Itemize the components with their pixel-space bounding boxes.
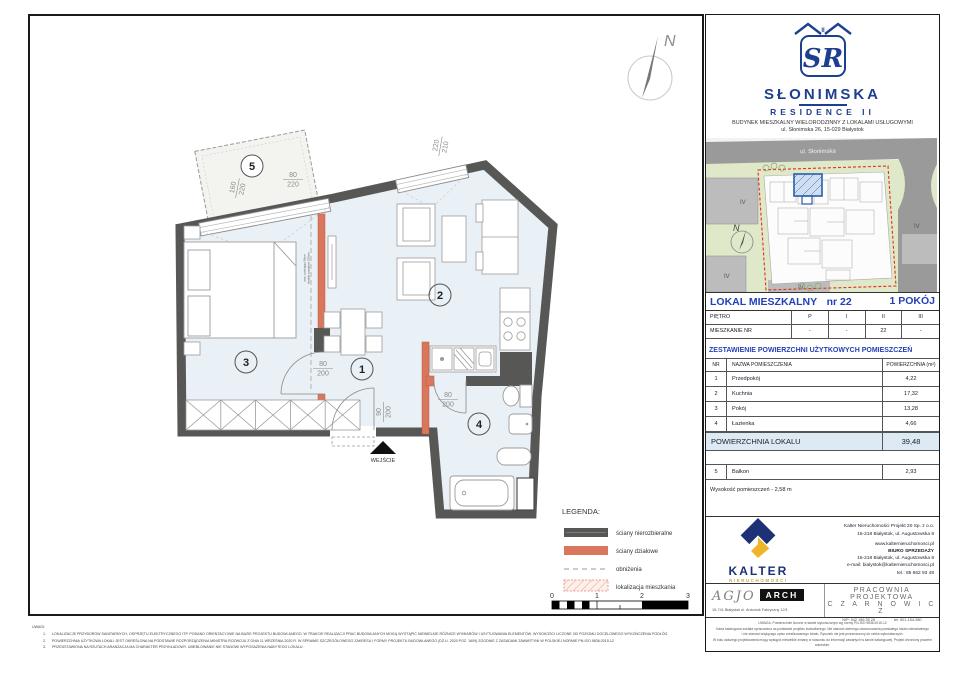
scale-label: 0 <box>550 593 554 600</box>
dim-value: 200 <box>442 402 454 409</box>
developer-phone: tel.: 85 662 93 48 <box>811 570 934 577</box>
washing-machine <box>517 478 534 510</box>
unit-room-count: 1 POKÓJ <box>889 295 935 307</box>
developer-website: www.kalternieruchomosci.pl <box>811 541 934 548</box>
room-number-1: 1 <box>359 364 365 376</box>
partition-wall <box>318 214 325 328</box>
developer-address: 15-218 Białystok, ul. Augustowska 8 <box>811 531 934 538</box>
neighbor-building <box>706 178 758 224</box>
kitchen-stove <box>500 288 530 350</box>
table-row: 4Łazienka4,66 <box>706 417 939 432</box>
dim-top-window: 220 210 <box>431 135 451 158</box>
dim-value: 80 <box>444 392 452 399</box>
note-item: 3.PRZEDSTAWIONA NA RZUTACH ARANŻACJA MA … <box>32 644 692 651</box>
site-north-label: N <box>733 223 740 233</box>
developer-brand-sub: NIERUCHOMOŚCI <box>706 578 811 583</box>
nightstand <box>184 342 200 355</box>
studio-name-line1: PRACOWNIA PROJEKTOWA <box>825 587 939 601</box>
areas-section-title: ZESTAWIENIE POWIERZCHNI UŻYTKOWYCH POMIE… <box>709 347 936 354</box>
scale-label: 2 <box>640 593 644 600</box>
agjo-logo-text: AGJO <box>712 589 756 604</box>
floorplan-catalog-card: { "brand": { "monogram": "SR", "roman": … <box>0 0 960 678</box>
dim-value: 200 <box>386 406 393 418</box>
beam-annotation-line2: światło przejścia 230cm <box>307 252 311 284</box>
beam-annotation: wys. podciągu 28cm światło przejścia 230… <box>303 252 311 284</box>
zone-label: IV <box>740 200 746 206</box>
notes-left-title: UWAGI: <box>32 624 692 631</box>
zone-label: IV <box>914 224 920 230</box>
total-label: POWIERZCHNIA LOKALU <box>706 433 882 450</box>
legend-title: LEGENDA: <box>562 507 600 516</box>
bathtub <box>450 476 514 510</box>
brand-name: SŁONIMSKA <box>706 86 939 103</box>
legend-label: ściany działowe <box>616 549 659 555</box>
fineprint-line: i nie stanowi wiążącego opisu zrealizowa… <box>712 632 933 638</box>
total-row: POWIERZCHNIA LOKALU 39,48 <box>706 432 939 450</box>
architect-logo: AGJOARCH 15-741 Białystok ul. Antoniuk F… <box>706 584 825 617</box>
table-row: 5Balkon2,93 <box>706 465 939 479</box>
notes-left: UWAGI: 1.LOKALIZACJE PRZYBORÓW SANITARNY… <box>32 624 692 651</box>
arch-badge: ARCH <box>760 589 805 601</box>
floors-label: PIĘTRO <box>706 311 792 324</box>
scale-bar: 0 1 2 3 <box>550 593 690 609</box>
table-row: 2Kuchnia17,32 <box>706 387 939 402</box>
floors-table: PIĘTRO P I II III MIESZKANIE NR - - 22 - <box>706 311 939 339</box>
sofa <box>476 200 518 274</box>
zone-label: IV <box>724 274 730 280</box>
col-name: NAZWA POMIESZCZENIA <box>727 359 883 371</box>
neighbor-building <box>902 234 937 264</box>
kitchen-counter <box>430 346 496 372</box>
developer-email: e-mail: bialystok@kalternieruchomosci.pl <box>811 562 934 569</box>
street-label: ul. Słonimska <box>800 148 836 155</box>
apartment-cell: - <box>792 324 829 338</box>
apartment-cell: 22 <box>866 324 903 338</box>
dim-value: 220 <box>287 182 299 189</box>
legend-label: ściany nierozbieralne <box>616 531 673 537</box>
entrance-threshold <box>332 437 374 446</box>
scale-label: 3 <box>686 593 690 600</box>
floor-col: I <box>829 311 866 324</box>
wardrobe <box>186 400 360 430</box>
areas-header-row: NR NAZWA POMIESZCZENIA POWIERZCHNIA (m²) <box>706 359 939 372</box>
total-value: 39,48 <box>882 433 939 450</box>
legend-label: obniżenia <box>616 567 642 573</box>
dim-value: 200 <box>317 371 329 378</box>
unit-number: nr 22 <box>827 296 852 308</box>
compass-icon: N <box>628 33 676 100</box>
legend-swatch-unit-location <box>564 580 608 591</box>
brand-block: II SR SŁONIMSKA RESIDENCE II BUDYNEK MIE… <box>706 15 939 133</box>
brand-monogram: SR <box>802 44 842 74</box>
building-description: BUDYNEK MIESZKALNY WIELORODZINNY Z LOKAL… <box>706 120 939 126</box>
table-row: 1Przedpokój4,22 <box>706 372 939 387</box>
site-plan: ul. Słonimska IV IV IV IV <box>706 138 937 292</box>
floorplan-drawing: wys. podciągu 28cm światło przejścia 230… <box>30 16 698 610</box>
kalter-logo-icon <box>740 518 776 558</box>
apartment-cell: - <box>829 324 866 338</box>
legend: LEGENDA: ściany nierozbieralne ściany dz… <box>562 507 676 591</box>
table-row: 3Pokój13,28 <box>706 402 939 417</box>
ceiling-height-note: Wysokość pomieszczeń - 2,58 m <box>710 487 939 493</box>
compass-north-label: N <box>664 33 676 50</box>
sales-office-address: 15-218 Białystok, ul. Augustowska 8 <box>811 555 934 562</box>
brand-subtitle: RESIDENCE II <box>706 107 939 117</box>
balcony-table: 5Balkon2,93 <box>706 464 939 480</box>
notes-right: UWAGA: Powierzchnie liczone w stanie wyk… <box>706 617 939 651</box>
unit-titlebar: LOKAL MIESZKALNY nr 22 1 POKÓJ <box>706 292 939 311</box>
developer-brand: KALTER <box>706 564 811 578</box>
developer-contact: Kalter Nieruchomości Projekt 20 Sp. z o.… <box>811 523 939 576</box>
architect-block: AGJOARCH 15-741 Białystok ul. Antoniuk F… <box>706 583 939 617</box>
areas-table: NR NAZWA POMIESZCZENIA POWIERZCHNIA (m²)… <box>706 358 939 451</box>
floor-col: II <box>866 311 903 324</box>
dim-value: 90 <box>376 408 383 416</box>
unit-label: LOKAL MIESZKALNY <box>710 296 817 308</box>
washbasin-tap <box>526 423 529 426</box>
architect-address: 15-741 Białystok ul. Antoniuk Fabryczny … <box>712 608 824 612</box>
dim-value: 80 <box>289 172 297 179</box>
bathroom-wall-top <box>466 376 532 386</box>
room-number-3: 3 <box>243 357 249 369</box>
col-nr: NR <box>706 359 727 371</box>
building-footprint <box>764 172 892 284</box>
apartment-row-label: MIESZKANIE NR <box>706 324 792 338</box>
room-number-2: 2 <box>437 290 443 302</box>
note-item: 1.LOKALIZACJE PRZYBORÓW SANITARNYCH, OSP… <box>32 631 692 638</box>
note-item: 2.POWIERZCHNIA UŻYTKOWA LOKALI JEST OKRE… <box>32 638 692 645</box>
bathroom-wall-left <box>422 342 429 434</box>
unit-title: LOKAL MIESZKALNY nr 22 <box>710 292 852 310</box>
brand-underline <box>799 104 847 106</box>
building-address: ul. Słonimska 26, 15-029 Białystok <box>706 127 939 133</box>
floor-col: III <box>902 311 939 324</box>
entrance-label: WEJŚCIE <box>371 456 396 464</box>
bidet <box>497 448 531 465</box>
room-number-4: 4 <box>476 419 483 431</box>
studio-block: PRACOWNIA PROJEKTOWA C Z A R N O W I C Z… <box>825 584 939 617</box>
brand-logo-icon: II SR <box>787 21 859 79</box>
coffee-table <box>442 216 466 262</box>
developer-block: KALTER NIERUCHOMOŚCI Kalter Nieruchomośc… <box>706 516 939 583</box>
scale-label: 1 <box>595 593 599 600</box>
duct-block <box>500 352 532 376</box>
floorplan-sheet: wys. podciągu 28cm światło przejścia 230… <box>28 14 704 616</box>
brand-roman: II <box>821 28 825 34</box>
nightstand <box>184 226 200 239</box>
fineprint-line: W toku dalszego projektowania mogą wystą… <box>712 638 933 649</box>
bathroom-door-jamb <box>426 376 434 386</box>
bed <box>184 242 296 338</box>
washbasin <box>509 414 532 434</box>
floor-col: P <box>792 311 829 324</box>
dim-value: 210 <box>441 141 450 154</box>
info-panel: II SR SŁONIMSKA RESIDENCE II BUDYNEK MIE… <box>705 14 940 652</box>
sales-office-label: BIURO SPRZEDAŻY <box>811 548 934 555</box>
apartment-cell: - <box>902 324 939 338</box>
developer-company: Kalter Nieruchomości Projekt 20 Sp. z o.… <box>811 523 934 530</box>
legend-label: lokalizacja mieszkania <box>616 585 676 591</box>
col-area: POWIERZCHNIA (m²) <box>883 359 939 371</box>
studio-name-line2: C Z A R N O W I C Z <box>825 601 939 615</box>
dim-value: 80 <box>319 361 327 368</box>
legend-swatch-partition-wall <box>564 546 608 555</box>
developer-logo: KALTER NIERUCHOMOŚCI <box>706 518 811 583</box>
room-number-5: 5 <box>249 161 255 173</box>
